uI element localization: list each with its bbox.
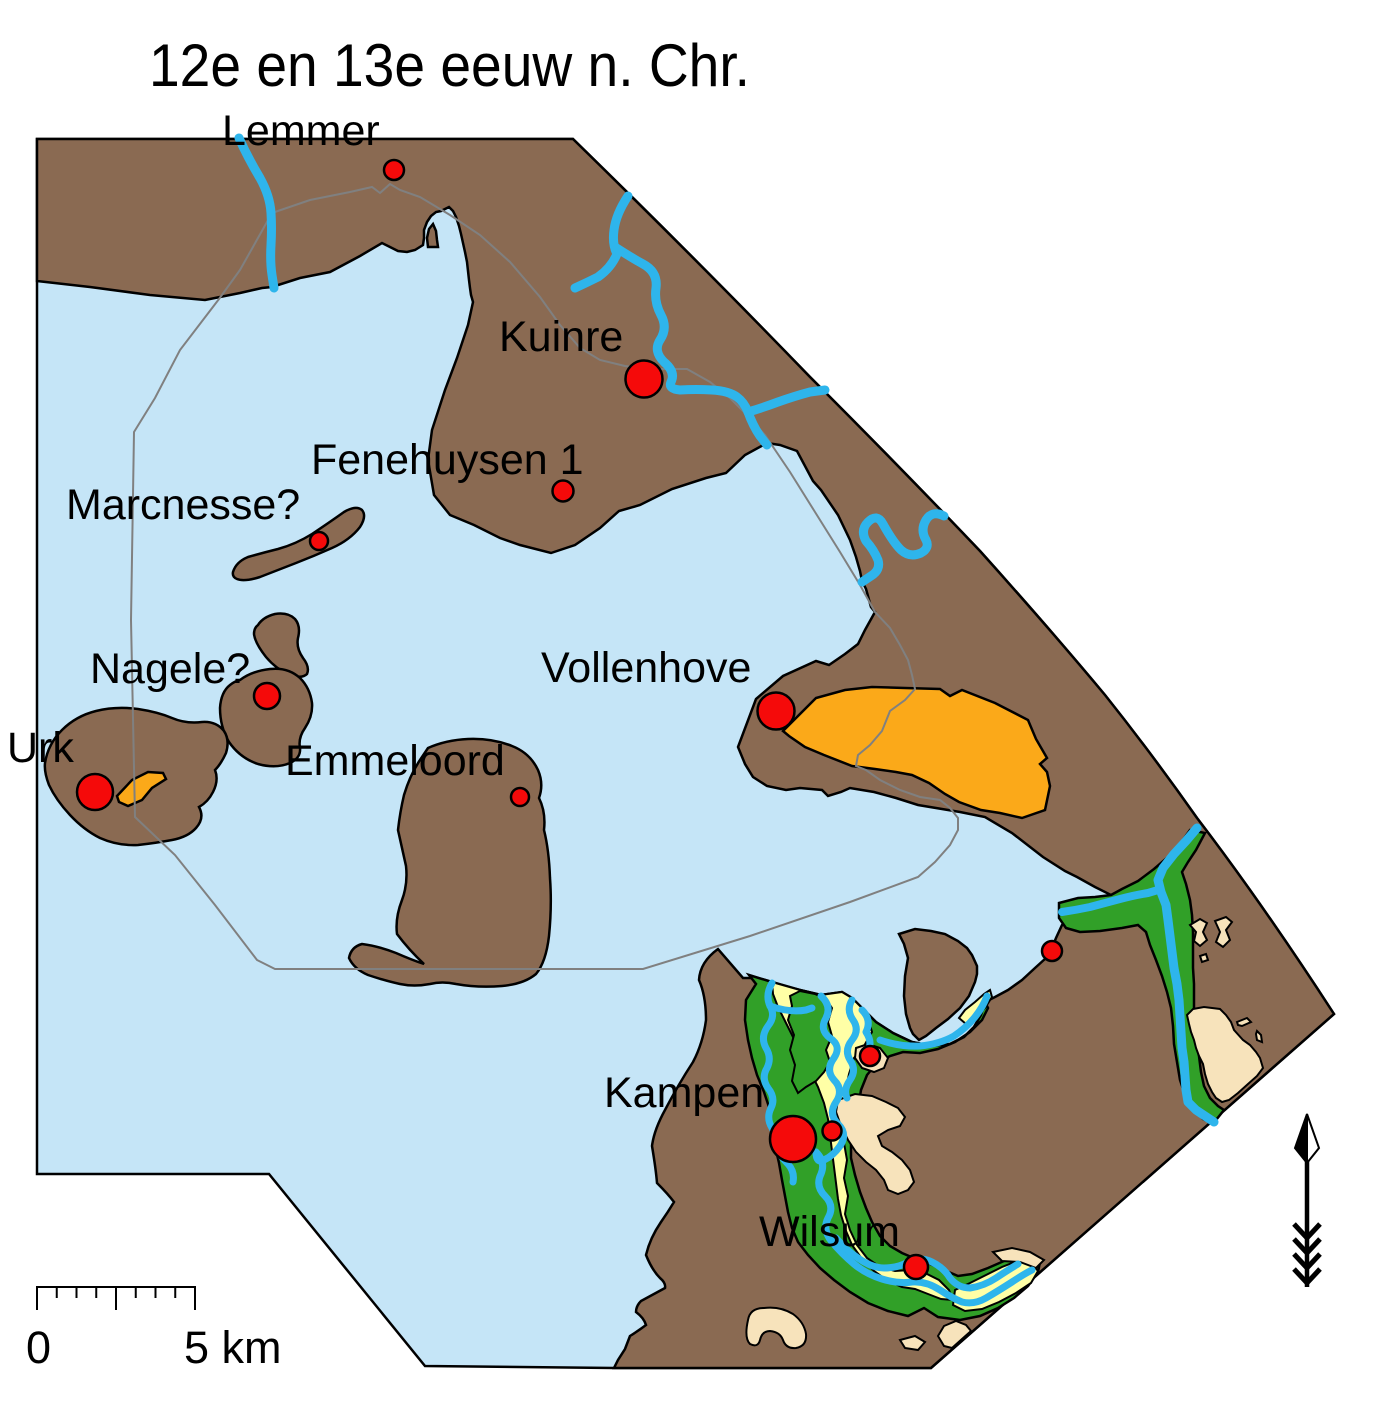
svg-text:Nagele?: Nagele? <box>90 645 250 693</box>
svg-text:12e en 13e eeuw n. Chr.: 12e en 13e eeuw n. Chr. <box>149 32 750 99</box>
svg-text:Urk: Urk <box>7 724 74 772</box>
svg-text:Lemmer: Lemmer <box>222 107 380 155</box>
svg-text:Vollenhove: Vollenhove <box>541 644 751 692</box>
svg-text:Fenehuysen 1: Fenehuysen 1 <box>311 436 584 484</box>
svg-text:Emmeloord: Emmeloord <box>285 737 505 785</box>
svg-text:Kuinre: Kuinre <box>499 313 623 361</box>
svg-text:5 km: 5 km <box>184 1322 282 1373</box>
svg-text:Wilsum: Wilsum <box>759 1208 900 1256</box>
svg-text:Kampen: Kampen <box>604 1069 764 1117</box>
svg-text:0: 0 <box>26 1322 51 1373</box>
svg-text:Marcnesse?: Marcnesse? <box>66 481 300 529</box>
